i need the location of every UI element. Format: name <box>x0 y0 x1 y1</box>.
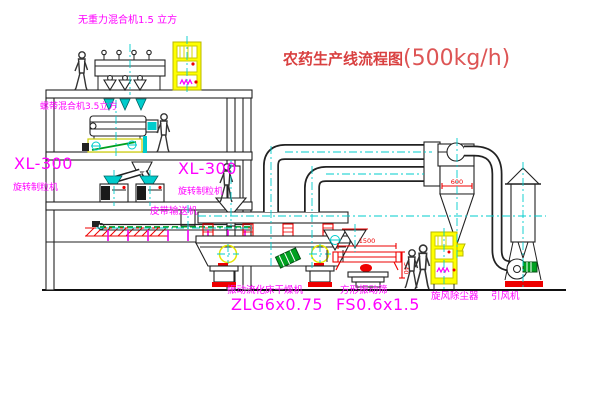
exhaust-ducts <box>271 152 432 212</box>
granulators-drawing <box>100 162 164 202</box>
fan-drawing <box>505 259 543 287</box>
label-belt-conveyor: 皮带输送机 <box>150 207 198 217</box>
flow-diagram-canvas: 600 <box>0 0 600 403</box>
label-sieve-model: FS0.6x1.5 <box>336 297 420 313</box>
label-granulator-right-name: 旋转制粒机 <box>178 188 223 197</box>
label-second-mixer: 螺带混合机3.5立方 <box>40 103 117 112</box>
sieve-length-dim: 1500 <box>359 237 376 245</box>
label-granulator-right-model: XL-300 <box>178 161 237 177</box>
label-gravity-mixer: 无重力混合机1.5 立方 <box>78 16 177 26</box>
label-dryer-model: ZLG6x0.75 <box>231 297 323 313</box>
worker-1 <box>75 52 88 90</box>
control-cabinet-1 <box>173 42 201 90</box>
worker-2 <box>157 114 170 152</box>
diagram-title-text: 农药生产线流程图 <box>283 50 403 68</box>
diagram-title-capacity: (500kg/h) <box>403 46 510 71</box>
label-cyclone: 旋风除尘器 <box>431 292 479 302</box>
fluid-bed-dryer-drawing <box>196 212 350 287</box>
label-fan: 引风机 <box>491 292 520 302</box>
label-granulator-left-name: 旋转制粒机 <box>13 184 58 193</box>
diagram-title: 农药生产线流程图(500kg/h) <box>283 46 510 71</box>
label-granulator-left-model: XL-300 <box>14 156 73 172</box>
second-mixer-drawing <box>82 116 158 153</box>
